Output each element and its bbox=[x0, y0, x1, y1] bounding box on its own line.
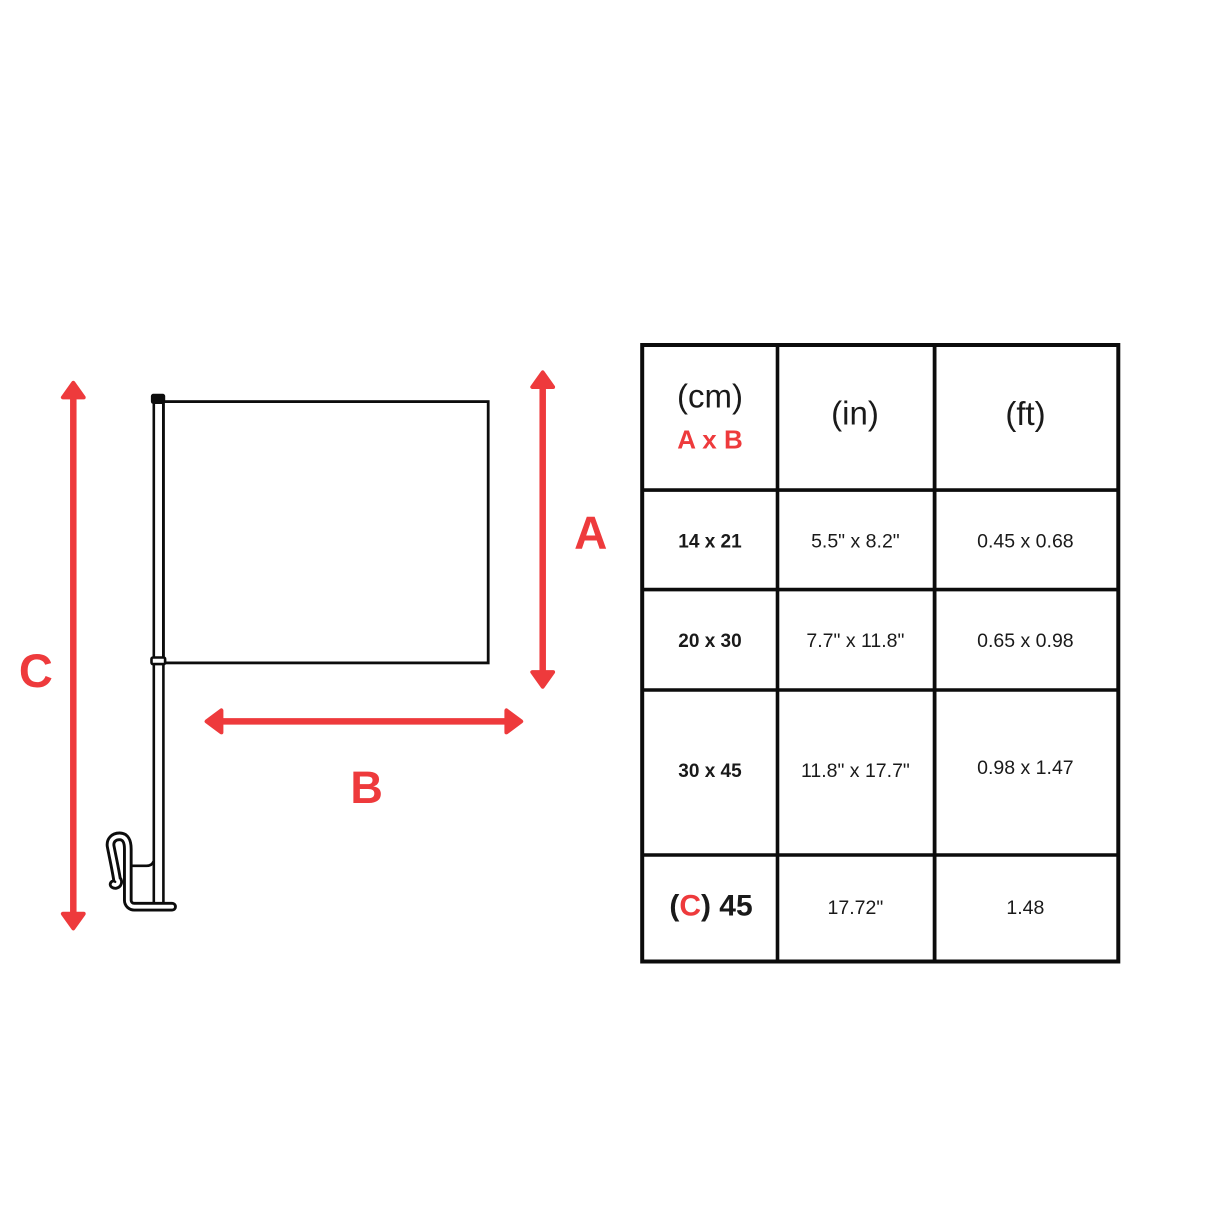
svg-text:(C) 45: (C) 45 bbox=[669, 890, 752, 923]
svg-text:14 x 21: 14 x 21 bbox=[678, 531, 742, 552]
svg-text:(in): (in) bbox=[831, 394, 879, 431]
svg-text:30 x 45: 30 x 45 bbox=[678, 761, 742, 782]
svg-text:5.5" x 8.2": 5.5" x 8.2" bbox=[811, 530, 900, 552]
svg-text:0.45 x 0.68: 0.45 x 0.68 bbox=[977, 530, 1074, 552]
svg-text:B: B bbox=[350, 762, 383, 813]
svg-text:0.98 x 1.47: 0.98 x 1.47 bbox=[977, 757, 1074, 779]
svg-text:20 x 30: 20 x 30 bbox=[678, 631, 741, 652]
svg-text:A x B: A x B bbox=[677, 424, 743, 454]
svg-text:11.8" x 17.7": 11.8" x 17.7" bbox=[801, 760, 910, 782]
svg-text:0.65 x 0.98: 0.65 x 0.98 bbox=[977, 630, 1074, 652]
svg-text:17.72": 17.72" bbox=[828, 897, 884, 919]
svg-text:1.48: 1.48 bbox=[1006, 897, 1044, 919]
svg-text:(ft): (ft) bbox=[1005, 395, 1045, 432]
svg-text:C: C bbox=[19, 644, 53, 697]
svg-text:A: A bbox=[574, 506, 607, 558]
svg-text:7.7" x 11.8": 7.7" x 11.8" bbox=[806, 630, 904, 652]
svg-text:(cm): (cm) bbox=[677, 378, 743, 415]
